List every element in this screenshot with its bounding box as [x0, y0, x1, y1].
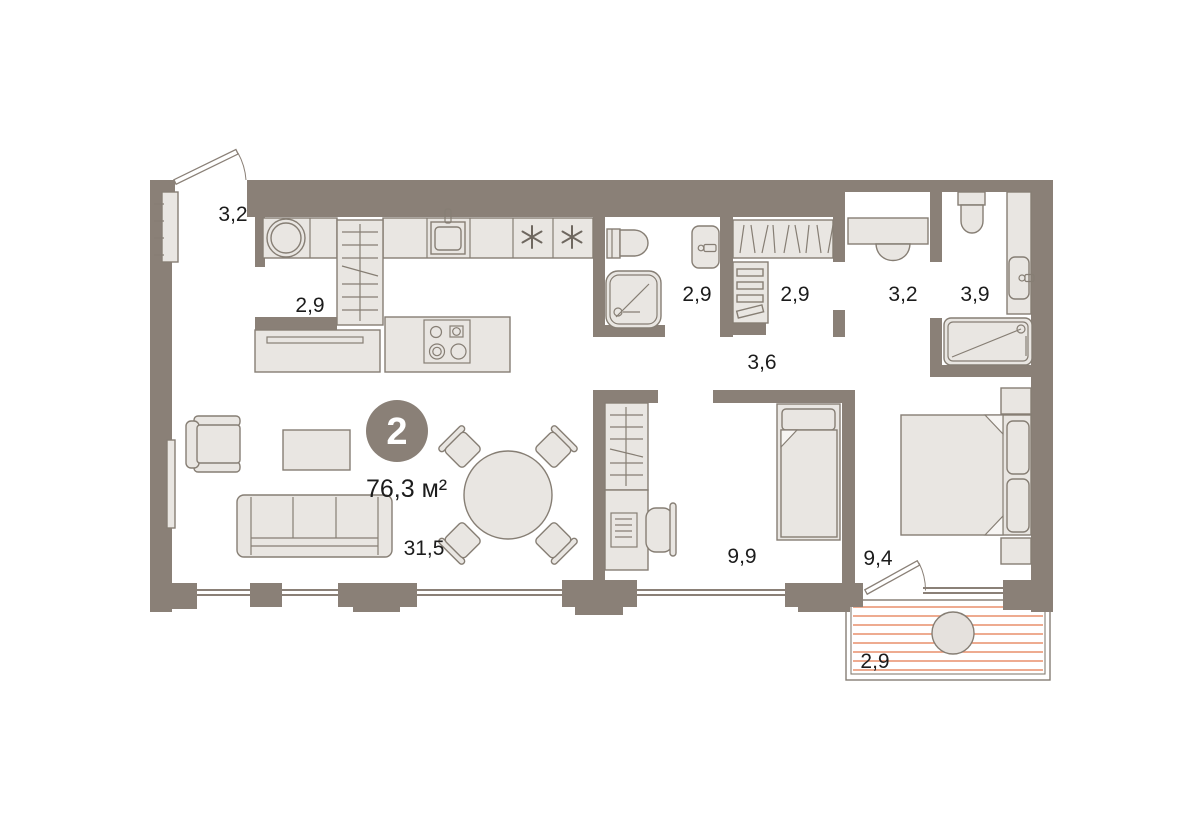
wardrobe-furniture: [733, 220, 833, 323]
wall-pillar: [353, 600, 400, 612]
wall-segment: [593, 390, 605, 583]
wall-segment: [930, 192, 942, 262]
bathtub-icon: [944, 318, 1032, 365]
double-bed-icon: [901, 415, 1031, 535]
balcony-table-icon: [932, 612, 974, 654]
chair-seat: [646, 508, 673, 552]
single-bed-icon: [777, 404, 840, 540]
wall-segment: [1031, 180, 1053, 612]
shelf: [737, 295, 763, 302]
bed-pillow: [1007, 479, 1029, 532]
nightstand-icon: [1001, 388, 1031, 414]
corridor-furniture: [848, 218, 928, 261]
wall-pillar: [1003, 580, 1053, 610]
entrance-door-swing-arc: [238, 153, 246, 180]
nightstand-icon: [1001, 538, 1031, 564]
badge-room-count: 2: [386, 411, 407, 453]
radiator-icon: [162, 192, 178, 262]
wall-pillar: [798, 600, 850, 612]
tv-icon: [167, 440, 175, 528]
kitchen: [255, 209, 593, 372]
shelf: [737, 269, 763, 276]
stool-icon: [876, 244, 910, 261]
armchair-icon: [186, 416, 240, 472]
room-label-closet: 2,9: [295, 294, 324, 317]
shower-icon: [606, 271, 661, 328]
armchair-seat: [197, 425, 240, 463]
entrance-door-icon: [174, 150, 246, 185]
bathroom-fixtures: [944, 192, 1034, 365]
wall-segment: [255, 317, 337, 330]
room-label-master-bedroom: 9,4: [863, 547, 893, 570]
toilet-icon: [958, 192, 985, 233]
room-label-corridor: 3,2: [888, 283, 917, 306]
wall-segment: [593, 390, 658, 403]
room-label-balcony: 2,9: [860, 650, 889, 673]
room-label-living-kitchen: 31,5: [404, 537, 445, 560]
apartment-badge: 2 76,3 м²: [366, 400, 447, 503]
wall-segment: [930, 365, 1053, 377]
shelf: [737, 282, 763, 289]
coffee-table-icon: [283, 430, 350, 470]
shower-room-fixtures: [606, 226, 719, 328]
wall-segment: [713, 390, 855, 403]
dining-table-icon: [464, 451, 552, 539]
desk-chair-icon: [646, 503, 676, 556]
toilet-bowl: [961, 205, 983, 233]
sink-basin: [692, 226, 719, 268]
hanger-rail-icon: [733, 220, 833, 258]
room-label-entrance-hall: 3,2: [218, 203, 247, 226]
sink-icon: [692, 226, 719, 268]
toilet-icon: [607, 229, 648, 258]
bed-pillow: [1007, 421, 1029, 474]
toilet-tank: [607, 229, 620, 258]
console-table-icon: [848, 218, 928, 244]
room-label-hallway: 3,6: [747, 351, 776, 374]
toilet-bowl: [620, 230, 648, 256]
room-label-bathroom: 3,9: [960, 283, 989, 306]
wall-pillar: [250, 583, 282, 607]
closet-furniture: [337, 220, 383, 325]
floor-plan-canvas: 3,2 2,9 2,9 2,9 3,2 3,9 3,6 31,5 9,9 9,4…: [0, 0, 1200, 830]
room-label-shower-room: 2,9: [682, 283, 711, 306]
room-label-wardrobe: 2,9: [780, 283, 809, 306]
badge-total-area: 76,3 м²: [366, 475, 447, 503]
wall-segment: [833, 310, 845, 337]
wall-segment: [720, 323, 766, 335]
wall-segment: [593, 217, 605, 337]
wall-segment: [833, 180, 845, 262]
wall-pillar: [575, 600, 623, 615]
wall-segment: [720, 180, 733, 337]
floor-plan: 3,2 2,9 2,9 2,9 3,2 3,9 3,6 31,5 9,9 9,4…: [0, 0, 1200, 830]
bed-blanket: [781, 430, 837, 537]
wall-segment: [845, 180, 1053, 192]
wall-segment: [247, 180, 845, 217]
sideboard-icon: [255, 330, 380, 372]
bed-pillow: [782, 409, 835, 430]
room-label-bedroom: 9,9: [727, 545, 756, 568]
sofa-icon: [237, 495, 392, 557]
kitchen-island-icon: [385, 317, 510, 372]
chair-back: [670, 503, 676, 556]
sofa-body: [237, 495, 392, 557]
wall-pillar: [150, 583, 172, 612]
bedroom-furniture: [605, 403, 840, 570]
entrance-door-leaf: [174, 150, 238, 185]
balcony-door-swing-arc: [919, 563, 926, 591]
kitchen-counter-icon: [383, 218, 593, 258]
toilet-tank: [958, 192, 985, 205]
master-bedroom-furniture: [901, 388, 1031, 564]
wall-segment: [842, 390, 855, 583]
